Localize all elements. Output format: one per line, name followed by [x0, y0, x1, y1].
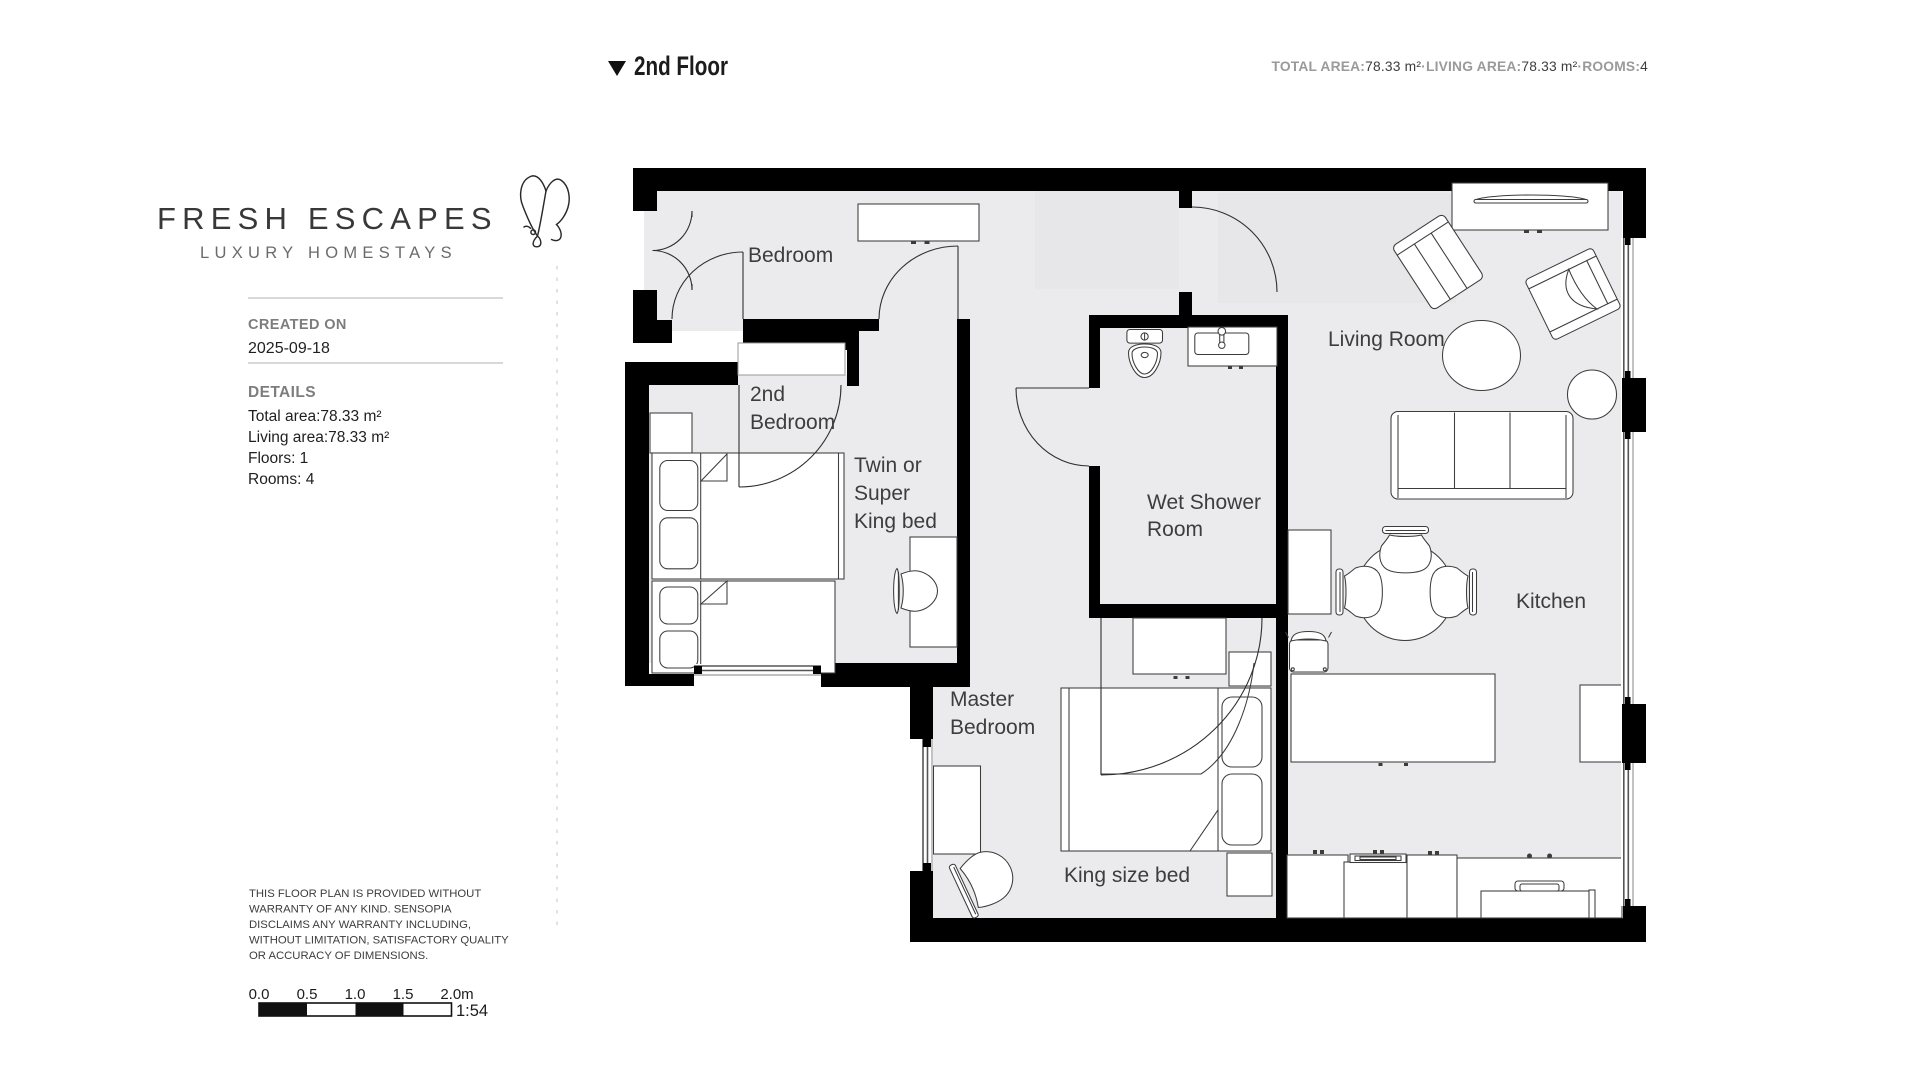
svg-text:2.0m: 2.0m — [440, 986, 473, 1003]
svg-text:0.0: 0.0 — [249, 986, 270, 1003]
svg-text:Rooms: 4: Rooms: 4 — [248, 471, 315, 488]
svg-text:1.5: 1.5 — [393, 986, 414, 1003]
svg-text:0.5: 0.5 — [297, 986, 318, 1003]
svg-text:THIS FLOOR PLAN IS PROVIDED WI: THIS FLOOR PLAN IS PROVIDED WITHOUT — [249, 888, 481, 900]
svg-text:Total area:78.33 m²: Total area:78.33 m² — [248, 408, 382, 425]
svg-text:2nd Floor: 2nd Floor — [634, 51, 728, 81]
svg-text:OR ACCURACY OF DIMENSIONS.: OR ACCURACY OF DIMENSIONS. — [249, 950, 428, 962]
svg-text:DISCLAIMS ANY WARRANTY INCLUDI: DISCLAIMS ANY WARRANTY INCLUDING, — [249, 919, 471, 931]
svg-text:FRESH ESCAPES: FRESH ESCAPES — [157, 201, 498, 236]
svg-text:TOTAL AREA:78.33 m²·LIVING ARE: TOTAL AREA:78.33 m²·LIVING AREA:78.33 m²… — [1271, 59, 1648, 74]
svg-text:Living area:78.33 m²: Living area:78.33 m² — [248, 429, 389, 446]
svg-text:King bed: King bed — [854, 510, 937, 533]
svg-text:2025-09-18: 2025-09-18 — [248, 340, 330, 357]
svg-text:Bedroom: Bedroom — [950, 716, 1035, 739]
svg-text:Twin or: Twin or — [854, 454, 922, 477]
svg-text:Master: Master — [950, 688, 1014, 711]
svg-text:1.0: 1.0 — [345, 986, 366, 1003]
svg-text:Bedroom: Bedroom — [750, 411, 835, 434]
svg-text:2nd: 2nd — [750, 383, 785, 406]
svg-text:Room: Room — [1147, 518, 1203, 541]
svg-text:CREATED ON: CREATED ON — [248, 317, 347, 333]
svg-text:1:54: 1:54 — [456, 1002, 488, 1020]
svg-text:Super: Super — [854, 482, 910, 505]
svg-text:Floors: 1: Floors: 1 — [248, 450, 308, 467]
svg-text:WITHOUT LIMITATION, SATISFACTO: WITHOUT LIMITATION, SATISFACTORY QUALITY — [249, 935, 509, 947]
svg-text:Living Room: Living Room — [1328, 328, 1445, 351]
svg-text:Kitchen: Kitchen — [1516, 590, 1586, 613]
svg-text:LUXURY HOMESTAYS: LUXURY HOMESTAYS — [200, 244, 457, 262]
svg-text:King size bed: King size bed — [1064, 864, 1190, 887]
svg-text:Wet Shower: Wet Shower — [1147, 491, 1261, 514]
svg-text:Bedroom: Bedroom — [748, 244, 833, 267]
svg-text:DETAILS: DETAILS — [248, 384, 316, 401]
svg-text:WARRANTY OF ANY KIND. SENSOPIA: WARRANTY OF ANY KIND. SENSOPIA — [249, 904, 452, 916]
